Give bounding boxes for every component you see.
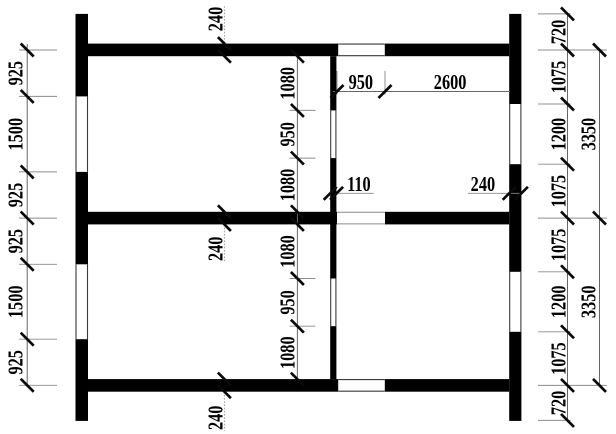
svg-text:3350: 3350 (578, 118, 602, 151)
svg-text:950: 950 (277, 290, 301, 314)
svg-text:1080: 1080 (277, 67, 301, 100)
svg-text:720: 720 (547, 20, 571, 44)
svg-text:1200: 1200 (547, 286, 571, 319)
svg-text:1075: 1075 (547, 229, 571, 262)
svg-text:1500: 1500 (4, 118, 28, 151)
svg-text:925: 925 (4, 350, 28, 374)
svg-text:240: 240 (205, 237, 229, 261)
svg-text:240: 240 (205, 406, 229, 430)
svg-text:925: 925 (4, 183, 28, 207)
svg-text:925: 925 (4, 229, 28, 253)
svg-text:1075: 1075 (547, 175, 571, 208)
svg-text:110: 110 (347, 173, 371, 197)
svg-text:240: 240 (471, 173, 495, 197)
svg-text:1075: 1075 (547, 61, 571, 94)
svg-text:1080: 1080 (277, 169, 301, 202)
svg-text:1075: 1075 (547, 342, 571, 375)
svg-text:720: 720 (547, 391, 571, 415)
svg-text:925: 925 (4, 61, 28, 85)
svg-text:950: 950 (277, 122, 301, 146)
svg-text:2600: 2600 (434, 71, 467, 95)
svg-text:1200: 1200 (547, 118, 571, 151)
svg-text:950: 950 (349, 71, 373, 95)
svg-text:240: 240 (205, 7, 229, 31)
svg-text:1080: 1080 (277, 235, 301, 268)
svg-text:3350: 3350 (578, 286, 602, 319)
svg-text:1080: 1080 (277, 336, 301, 369)
svg-text:1500: 1500 (4, 286, 28, 319)
